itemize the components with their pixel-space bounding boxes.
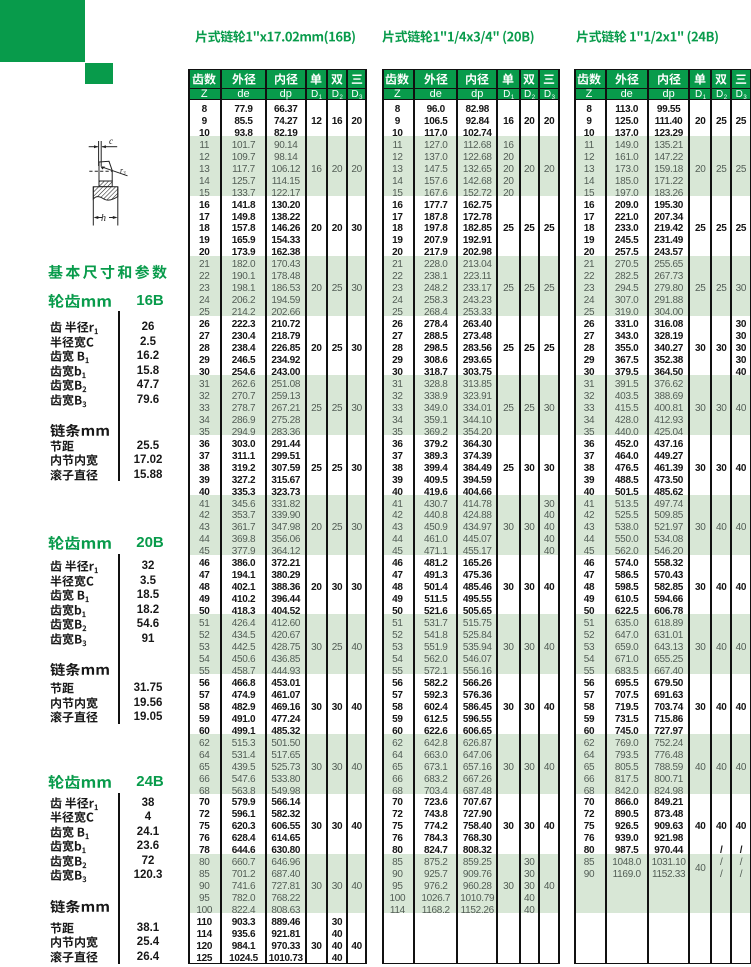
svg-text:c: c: [109, 136, 113, 146]
svg-text:h: h: [101, 213, 106, 224]
svg-text:r3: r3: [120, 166, 126, 177]
